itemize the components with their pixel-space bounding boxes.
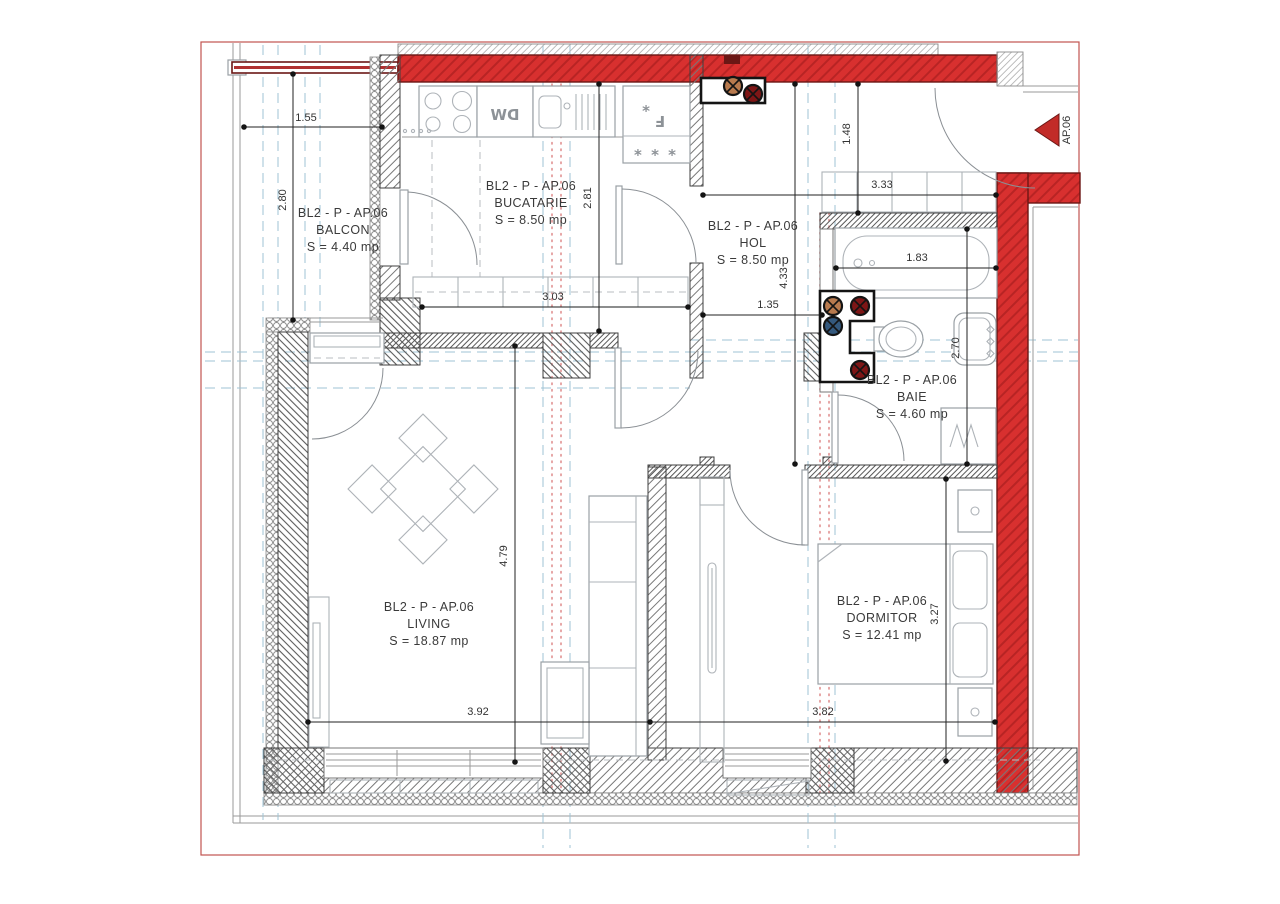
svg-text:2.81: 2.81 <box>582 187 594 208</box>
freezer-stars: * * * <box>634 146 678 164</box>
bath-door-arc <box>838 395 904 461</box>
dim-hol-passage: 1.35 <box>700 299 825 318</box>
living-balcony-door-arc <box>312 368 383 439</box>
floor-plan-canvas: DW * F * * * <box>0 0 1280 904</box>
room-label-hol: BL2 - P - AP.06 HOL S = 8.50 mp <box>708 219 798 267</box>
svg-text:1.55: 1.55 <box>295 112 316 124</box>
svg-text:2.70: 2.70 <box>950 337 962 358</box>
dim-hol-height: 4.33 <box>778 81 798 467</box>
svg-text:3.27: 3.27 <box>929 603 941 624</box>
dishwasher-label: DW <box>490 106 519 124</box>
bath-riser-icon <box>820 291 874 382</box>
entrance-closet-icon <box>822 172 996 212</box>
sink-icon <box>533 86 615 137</box>
living-bedroom-wall <box>648 467 666 760</box>
svg-text:HOL: HOL <box>740 236 767 250</box>
svg-text:LIVING: LIVING <box>407 617 450 631</box>
svg-text:S = 4.40 mp: S = 4.40 mp <box>307 240 379 254</box>
svg-text:4.79: 4.79 <box>498 545 510 566</box>
apartment-entrance-marker: AP.06 <box>1035 114 1073 146</box>
svg-text:DORMITOR: DORMITOR <box>846 611 917 625</box>
entrance-jamb <box>997 52 1023 86</box>
top-wall-strip <box>398 44 938 55</box>
svg-text:4.33: 4.33 <box>778 267 790 288</box>
svg-text:BUCATARIE: BUCATARIE <box>494 196 567 210</box>
kitchen-door-arc <box>622 189 696 263</box>
svg-text:S = 8.50 mp: S = 8.50 mp <box>717 253 789 267</box>
wardrobe-icon <box>700 477 724 762</box>
freezer-star: * <box>642 102 650 120</box>
room-label-dormitor: BL2 - P - AP.06 DORMITOR S = 12.41 mp <box>837 594 927 642</box>
sofa-icon <box>541 496 647 756</box>
svg-text:BL2 - P - AP.06: BL2 - P - AP.06 <box>298 206 388 220</box>
entrance-arrow-icon <box>1035 114 1059 146</box>
entrance-marker-label: AP.06 <box>1061 116 1073 145</box>
dining-table-icon <box>348 414 498 564</box>
svg-text:BL2 - P - AP.06: BL2 - P - AP.06 <box>708 219 798 233</box>
room-label-bucatarie: BL2 - P - AP.06 BUCATARIE S = 8.50 mp <box>486 179 576 227</box>
dim-hol-width: 3.33 <box>700 179 999 198</box>
svg-text:BL2 - P - AP.06: BL2 - P - AP.06 <box>384 600 474 614</box>
svg-text:1.35: 1.35 <box>757 299 778 311</box>
dim-bedroom-height: 3.27 <box>929 476 949 764</box>
svg-text:2.80: 2.80 <box>277 189 289 210</box>
living-door-arc <box>621 351 698 428</box>
svg-text:BAIE: BAIE <box>897 390 927 404</box>
svg-text:3.03: 3.03 <box>542 291 563 303</box>
dim-hol-top: 1.48 <box>841 81 861 216</box>
dishwasher-icon: DW <box>477 86 533 137</box>
svg-text:S = 8.50 mp: S = 8.50 mp <box>495 213 567 227</box>
svg-text:BL2 - P - AP.06: BL2 - P - AP.06 <box>867 373 957 387</box>
svg-text:1.48: 1.48 <box>841 123 853 144</box>
bedroom-door-arc <box>730 470 805 545</box>
kitchen-balcony-door-arc <box>408 192 477 265</box>
svg-text:BL2 - P - AP.06: BL2 - P - AP.06 <box>837 594 927 608</box>
nightstand-icon <box>958 688 992 736</box>
svg-text:S = 18.87 mp: S = 18.87 mp <box>389 634 469 648</box>
tv-unit-icon <box>309 597 329 747</box>
dim-kitchen-width: 3.03 <box>419 291 691 310</box>
column <box>543 333 590 378</box>
right-red-wall <box>997 173 1028 793</box>
room-label-living: BL2 - P - AP.06 LIVING S = 18.87 mp <box>384 600 474 648</box>
floor-plan-page: DW * F * * * <box>0 0 1280 904</box>
stove-icon <box>403 86 477 137</box>
balcony-door-window <box>310 333 384 363</box>
dim-balcon-height: 2.80 <box>277 71 296 323</box>
kitchen-riser-icon <box>701 77 765 103</box>
svg-text:1.83: 1.83 <box>906 252 927 264</box>
dim-living-height: 4.79 <box>498 343 518 765</box>
svg-text:S = 4.60 mp: S = 4.60 mp <box>876 407 948 421</box>
washing-machine-icon <box>941 408 996 464</box>
nightstand-icon <box>958 490 992 532</box>
svg-text:BL2 - P - AP.06: BL2 - P - AP.06 <box>486 179 576 193</box>
svg-text:3.33: 3.33 <box>871 179 892 191</box>
svg-text:BALCON: BALCON <box>316 223 370 237</box>
living-furniture <box>309 414 647 756</box>
room-label-baie: BL2 - P - AP.06 BAIE S = 4.60 mp <box>867 373 957 421</box>
freezer-f: F <box>655 112 665 130</box>
fridge-icon: * F * * * <box>623 86 690 164</box>
bath-top-wall <box>820 213 997 229</box>
svg-text:S = 12.41 mp: S = 12.41 mp <box>842 628 922 642</box>
svg-text:3.82: 3.82 <box>812 706 833 718</box>
svg-text:3.92: 3.92 <box>467 706 488 718</box>
